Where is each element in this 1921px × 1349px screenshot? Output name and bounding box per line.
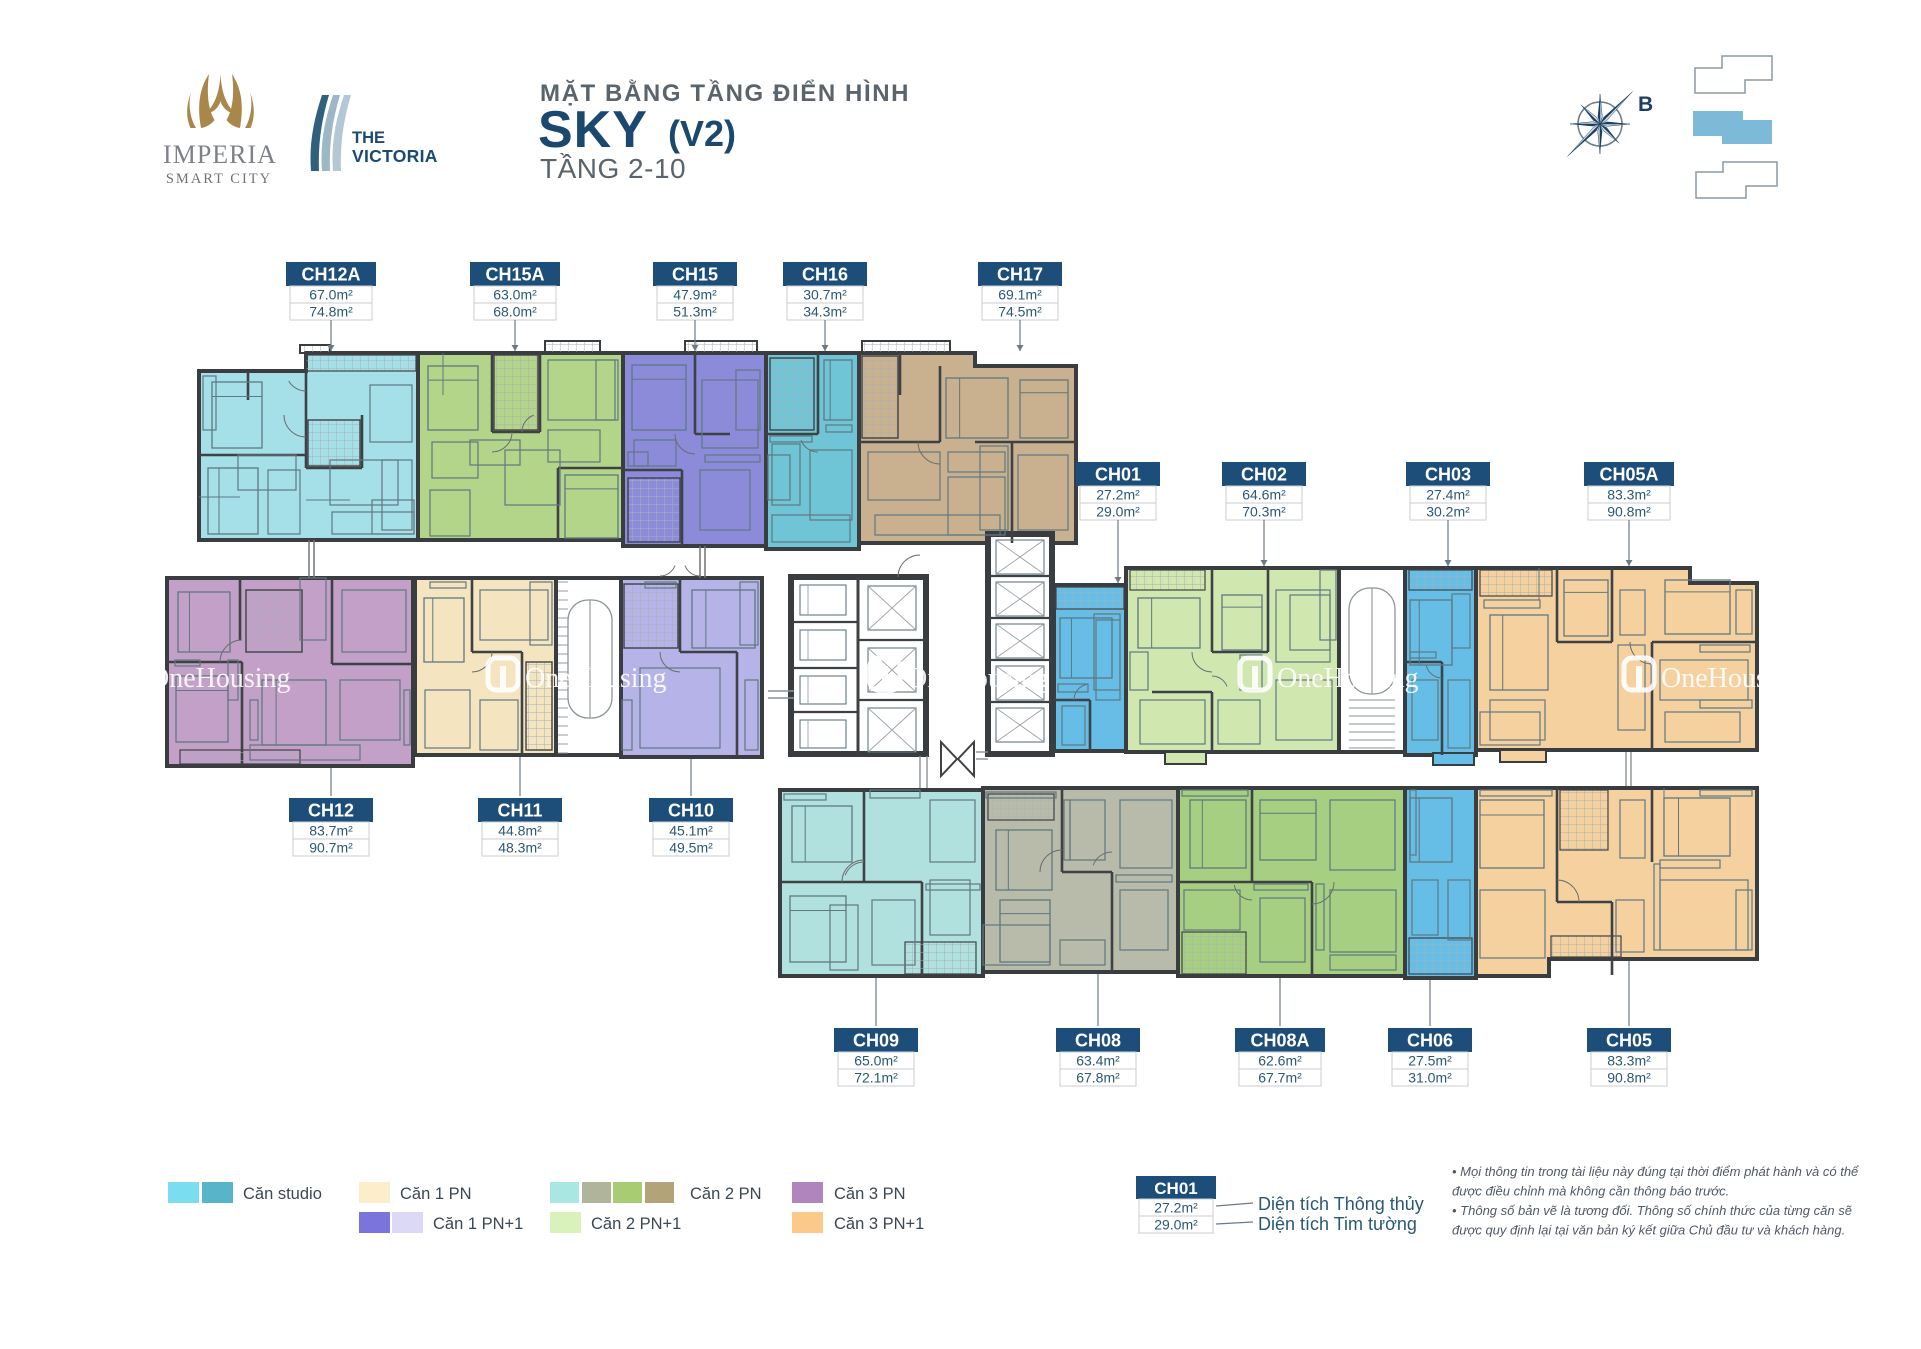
svg-text:67.8m²: 67.8m² — [1076, 1070, 1120, 1086]
svg-text:48.3m²: 48.3m² — [498, 840, 542, 856]
svg-text:Diện tích Tim tường: Diện tích Tim tường — [1258, 1214, 1417, 1234]
svg-text:90.7m²: 90.7m² — [309, 840, 353, 856]
svg-text:CH08A: CH08A — [1250, 1031, 1309, 1051]
svg-text:(V2): (V2) — [668, 113, 736, 154]
svg-text:27.4m²: 27.4m² — [1426, 487, 1470, 503]
svg-text:được điều chỉnh mà không cần t: được điều chỉnh mà không cần thông báo t… — [1452, 1184, 1729, 1199]
svg-text:CH12: CH12 — [308, 801, 354, 821]
svg-text:29.0m²: 29.0m² — [1096, 504, 1140, 520]
svg-text:CH05: CH05 — [1606, 1031, 1652, 1051]
svg-text:Căn 3 PN+1: Căn 3 PN+1 — [834, 1215, 924, 1233]
svg-text:45.1m²: 45.1m² — [669, 823, 713, 839]
svg-text:49.5m²: 49.5m² — [669, 840, 713, 856]
svg-text:CH03: CH03 — [1425, 465, 1471, 485]
svg-text:51.3m²: 51.3m² — [673, 304, 717, 320]
svg-text:OneHousing: OneHousing — [1661, 663, 1803, 694]
svg-text:65.0m²: 65.0m² — [854, 1053, 898, 1069]
svg-text:27.5m²: 27.5m² — [1408, 1053, 1452, 1069]
svg-text:29.0m²: 29.0m² — [1154, 1217, 1198, 1233]
svg-text:SKY: SKY — [538, 101, 648, 159]
svg-text:47.9m²: 47.9m² — [673, 287, 717, 303]
svg-text:Căn studio: Căn studio — [243, 1185, 322, 1203]
svg-text:TẦNG 2-10: TẦNG 2-10 — [540, 153, 686, 184]
svg-text:Căn 3 PN: Căn 3 PN — [834, 1185, 906, 1203]
svg-text:OneHousing: OneHousing — [149, 663, 291, 694]
svg-text:90.8m²: 90.8m² — [1607, 1070, 1651, 1086]
svg-text:44.8m²: 44.8m² — [498, 823, 542, 839]
svg-text:74.8m²: 74.8m² — [309, 304, 353, 320]
svg-text:được quy định lại tại văn bản: được quy định lại tại văn bản ký kết giữ… — [1452, 1223, 1845, 1238]
svg-text:CH16: CH16 — [802, 265, 848, 285]
svg-text:CH08: CH08 — [1075, 1031, 1121, 1051]
svg-text:CH11: CH11 — [497, 801, 542, 821]
svg-text:CH12A: CH12A — [301, 265, 360, 285]
svg-text:30.7m²: 30.7m² — [803, 287, 847, 303]
svg-text:CH10: CH10 — [668, 801, 714, 821]
svg-text:CH02: CH02 — [1241, 465, 1287, 485]
svg-text:30.2m²: 30.2m² — [1426, 504, 1470, 520]
svg-text:CH01: CH01 — [1095, 465, 1141, 485]
svg-text:SMART CITY: SMART CITY — [166, 171, 272, 187]
svg-text:Căn 1 PN+1: Căn 1 PN+1 — [433, 1215, 523, 1233]
svg-text:83.3m²: 83.3m² — [1607, 1053, 1651, 1069]
svg-text:83.7m²: 83.7m² — [309, 823, 353, 839]
svg-text:• Mọi thông tin trong tài liệu: • Mọi thông tin trong tài liệu này đúng … — [1452, 1164, 1859, 1179]
svg-text:83.3m²: 83.3m² — [1607, 487, 1651, 503]
svg-text:27.2m²: 27.2m² — [1154, 1200, 1198, 1216]
svg-text:Căn 2 PN+1: Căn 2 PN+1 — [591, 1215, 681, 1233]
svg-text:72.1m²: 72.1m² — [854, 1070, 898, 1086]
svg-text:CH01: CH01 — [1154, 1179, 1197, 1198]
svg-text:• Thông số bản vẽ là tương đối: • Thông số bản vẽ là tương đối. Thông số… — [1452, 1203, 1852, 1218]
svg-text:IMPERIA: IMPERIA — [163, 140, 277, 169]
svg-text:Căn 1 PN: Căn 1 PN — [400, 1185, 472, 1203]
svg-text:69.1m²: 69.1m² — [998, 287, 1042, 303]
svg-text:68.0m²: 68.0m² — [493, 304, 537, 320]
svg-text:OneHousing: OneHousing — [1277, 663, 1419, 694]
svg-text:CH15: CH15 — [672, 265, 718, 285]
svg-text:Diện tích Thông thủy: Diện tích Thông thủy — [1258, 1194, 1424, 1214]
svg-text:OneHousing: OneHousing — [907, 663, 1049, 694]
svg-text:67.0m²: 67.0m² — [309, 287, 353, 303]
svg-text:B: B — [1638, 93, 1653, 116]
svg-text:OneHousing: OneHousing — [525, 663, 667, 694]
svg-text:CH06: CH06 — [1407, 1031, 1453, 1051]
svg-text:67.7m²: 67.7m² — [1258, 1070, 1302, 1086]
svg-text:THE: THE — [352, 129, 385, 147]
svg-text:27.2m²: 27.2m² — [1096, 487, 1140, 503]
svg-text:70.3m²: 70.3m² — [1242, 504, 1286, 520]
svg-text:Căn 2 PN: Căn 2 PN — [690, 1185, 762, 1203]
svg-text:CH09: CH09 — [853, 1031, 899, 1051]
svg-text:64.6m²: 64.6m² — [1242, 487, 1286, 503]
svg-text:74.5m²: 74.5m² — [998, 304, 1042, 320]
svg-text:63.4m²: 63.4m² — [1076, 1053, 1120, 1069]
svg-text:CH05A: CH05A — [1599, 465, 1658, 485]
svg-text:90.8m²: 90.8m² — [1607, 504, 1651, 520]
svg-text:CH17: CH17 — [997, 265, 1043, 285]
svg-text:63.0m²: 63.0m² — [493, 287, 537, 303]
svg-text:34.3m²: 34.3m² — [803, 304, 847, 320]
svg-text:VICTORIA: VICTORIA — [352, 146, 438, 166]
svg-text:CH15A: CH15A — [485, 265, 544, 285]
svg-text:62.6m²: 62.6m² — [1258, 1053, 1302, 1069]
svg-text:31.0m²: 31.0m² — [1408, 1070, 1452, 1086]
